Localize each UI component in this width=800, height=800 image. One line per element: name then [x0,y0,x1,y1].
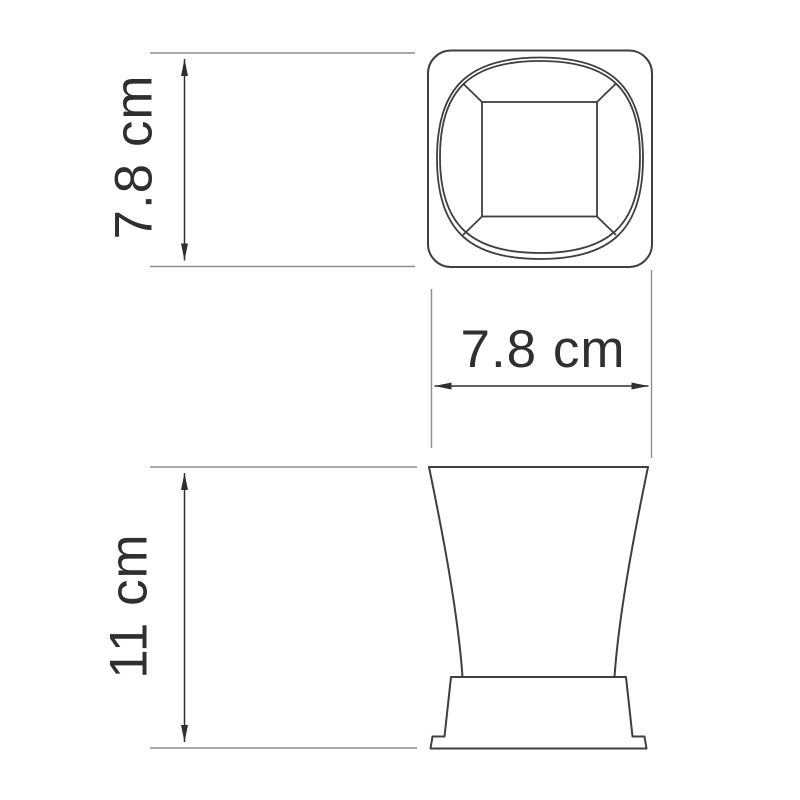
corner-facet-line-bottom-right [597,217,616,236]
arrowhead-left-icon [435,383,452,390]
drawing-canvas: 7.8 cm 7.8 cm 11 cm [0,0,800,800]
arrowhead-right-icon [632,383,649,390]
front-view [429,467,648,749]
arrowhead-up-icon [181,59,188,76]
arrowhead-up-icon [181,473,188,490]
arrowhead-down-icon [181,725,188,742]
inner-base-square [482,102,597,217]
dimension-label-body-height: 11 cm [100,533,159,678]
corner-facet-line-top-right [597,84,616,103]
corner-facet-line-top-left [463,84,482,103]
arrowhead-down-icon [181,244,188,261]
technical-drawing: 7.8 cm 7.8 cm 11 cm [0,0,800,800]
dimension-label-rim-width: 7.8 cm [460,320,625,379]
corner-facet-line-bottom-left [463,217,482,236]
dimension-label-top-view-depth: 7.8 cm [105,74,164,239]
top-view [428,51,652,268]
dimension-top-view-depth: 7.8 cm [105,53,415,267]
dimension-rim-width: 7.8 cm [432,270,652,458]
dimension-body-height: 11 cm [100,467,417,748]
front-right-profile-line [615,467,649,677]
front-left-profile-line [429,467,463,677]
front-base-outline [431,677,647,749]
